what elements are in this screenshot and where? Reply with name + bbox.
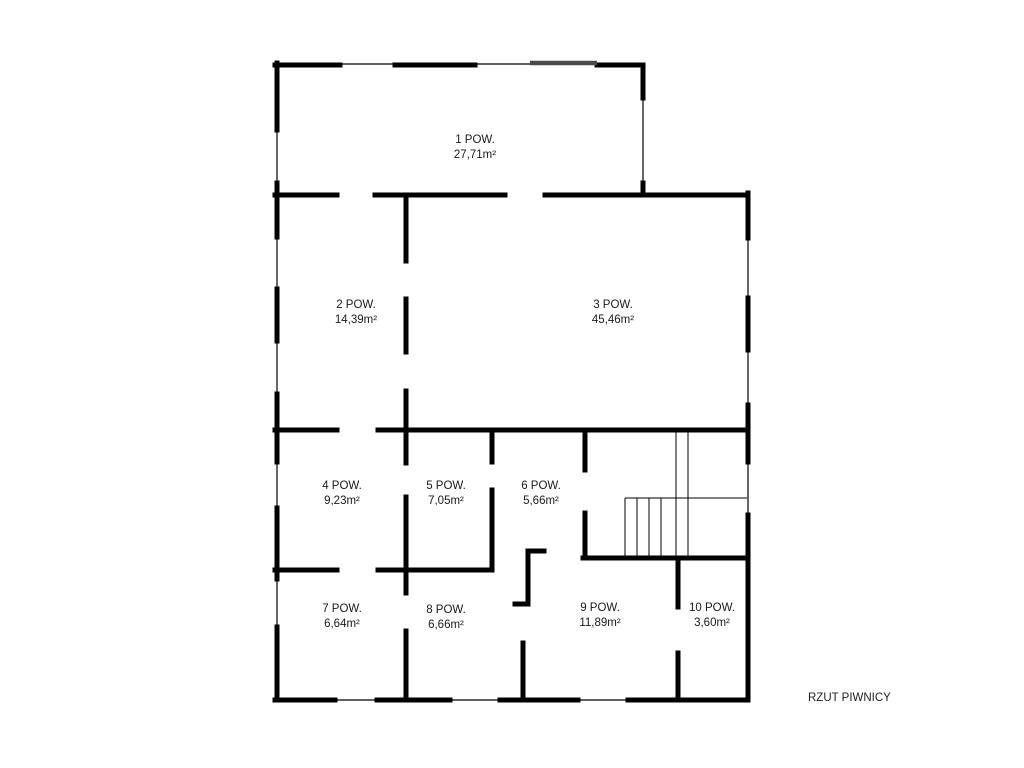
room-area-text: 11,89m² — [579, 616, 620, 631]
room-number-text: 9 POW. — [579, 601, 620, 616]
floor-plan-canvas: 1 POW.27,71m²2 POW.14,39m²3 POW.45,46m²4… — [0, 0, 1024, 768]
floor-plan-drawing — [0, 0, 1024, 768]
room-label-9: 9 POW.11,89m² — [579, 601, 620, 631]
room-area-text: 9,23m² — [322, 494, 362, 509]
room-area-text: 45,46m² — [592, 313, 634, 328]
room-area-text: 27,71m² — [454, 148, 496, 163]
room-area-text: 6,64m² — [322, 617, 362, 632]
room-label-3: 3 POW.45,46m² — [592, 298, 634, 328]
room-number-text: 10 POW. — [689, 601, 735, 616]
room-area-text: 14,39m² — [335, 313, 377, 328]
room-number-text: 1 POW. — [454, 133, 496, 148]
room-number-text: 2 POW. — [335, 298, 377, 313]
room-number-text: 6 POW. — [521, 479, 561, 494]
room-number-text: 3 POW. — [592, 298, 634, 313]
room-number-text: 4 POW. — [322, 479, 362, 494]
room-label-1: 1 POW.27,71m² — [454, 133, 496, 163]
room-label-6: 6 POW.5,66m² — [521, 479, 561, 509]
room-label-7: 7 POW.6,64m² — [322, 602, 362, 632]
room-area-text: 7,05m² — [426, 494, 466, 509]
room-label-4: 4 POW.9,23m² — [322, 479, 362, 509]
room-area-text: 5,66m² — [521, 494, 561, 509]
room-number-text: 7 POW. — [322, 602, 362, 617]
room-number-text: 5 POW. — [426, 479, 466, 494]
plan-title: RZUT PIWNICY — [808, 692, 891, 704]
room-area-text: 6,66m² — [426, 618, 466, 633]
room-label-2: 2 POW.14,39m² — [335, 298, 377, 328]
room-label-5: 5 POW.7,05m² — [426, 479, 466, 509]
room-area-text: 3,60m² — [689, 616, 735, 631]
room-number-text: 8 POW. — [426, 603, 466, 618]
room-label-10: 10 POW.3,60m² — [689, 601, 735, 631]
room-label-8: 8 POW.6,66m² — [426, 603, 466, 633]
